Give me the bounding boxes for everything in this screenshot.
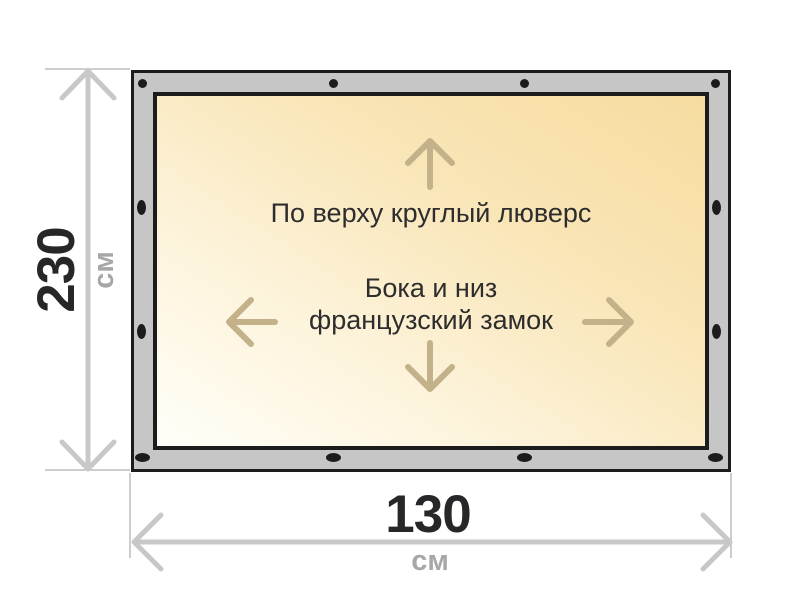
tarp-frame [131, 70, 731, 472]
grommet [329, 79, 338, 88]
sides-bottom-note-line1: Бока и низ [157, 272, 705, 304]
grommet [137, 324, 146, 339]
sides-bottom-note-line2: французский замок [157, 304, 705, 336]
grommet [517, 453, 532, 462]
height-unit-label: см [86, 230, 122, 310]
grommet [708, 453, 723, 462]
grommet [137, 200, 146, 215]
grommet [138, 79, 147, 88]
grommet [135, 453, 150, 462]
width-value-label: 130 [328, 485, 528, 545]
top-edge-note: По верху круглый люверс [157, 197, 705, 229]
grommet [326, 453, 341, 462]
grommet [712, 324, 721, 339]
down-arrow-icon [402, 340, 458, 396]
dimension-diagram: 230 см 130 см По верху круглый люверс Бо… [0, 0, 800, 600]
sides-bottom-note: Бока и низ французский замок [157, 272, 705, 336]
height-value-label: 230 [27, 170, 87, 370]
grommet [711, 79, 720, 88]
up-arrow-icon [402, 134, 458, 190]
grommet [520, 79, 529, 88]
grommet [712, 200, 721, 215]
width-unit-label: см [390, 543, 470, 579]
